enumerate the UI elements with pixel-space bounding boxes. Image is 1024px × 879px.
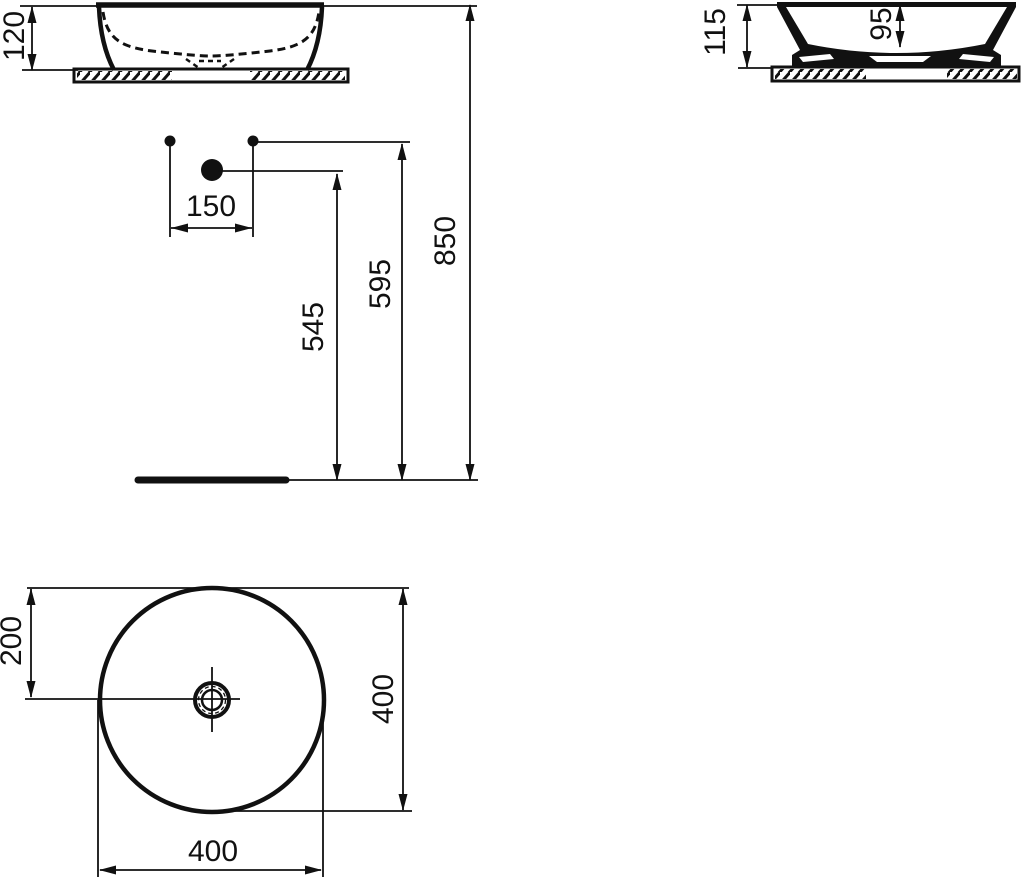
plan-diameter-front-dim-label: 400: [188, 837, 238, 867]
countertop-front: [74, 69, 348, 82]
dimension-545: [333, 173, 342, 481]
technical-drawing-page: 120 115 95 150 545 595 850 200 400 400: [0, 0, 1024, 879]
drain-point-dot: [201, 159, 223, 181]
dimension-115: [743, 4, 752, 68]
supply-point-left-dot: [165, 136, 176, 147]
basin-inner-hidden-line: [103, 12, 319, 56]
drain-hidden-line: [186, 59, 234, 68]
front-height-dim-label: 120: [0, 11, 30, 61]
plan-diameter-side-dim-label: 400: [369, 674, 399, 724]
hole-spacing-dim-label: 150: [186, 192, 236, 222]
supply-height-dim-label: 595: [366, 259, 396, 309]
plan-view: [25, 588, 412, 877]
front-elevation-view: [20, 5, 477, 82]
countertop-side: [772, 67, 1019, 81]
overall-height-dim-label: 850: [431, 216, 461, 266]
dimension-150: [171, 224, 252, 233]
basin-front-outline: [96, 5, 324, 70]
supply-point-right-dot: [248, 136, 259, 147]
dimension-850: [466, 4, 475, 481]
side-overall-height-dim-label: 115: [701, 8, 731, 56]
plan-center-offset-dim-label: 200: [0, 616, 27, 666]
dimension-595: [398, 143, 407, 481]
drain-height-dim-label: 545: [299, 302, 329, 352]
drawing-linework: [0, 0, 1024, 879]
side-bowl-depth-dim-label: 95: [867, 7, 897, 40]
